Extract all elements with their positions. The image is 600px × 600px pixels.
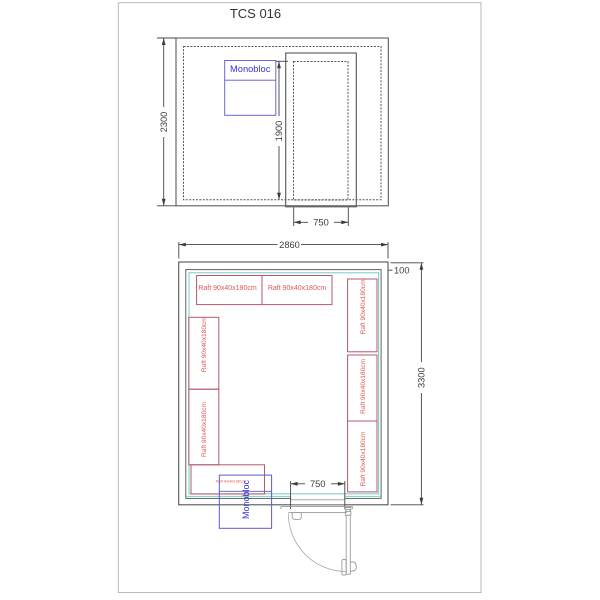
- svg-text:Raft 90x40x180cm: Raft 90x40x180cm: [360, 279, 367, 334]
- svg-text:1900: 1900: [274, 121, 284, 142]
- svg-text:Raft 90x40x180cm: Raft 90x40x180cm: [201, 317, 208, 372]
- svg-text:Raft 90x40x180cm: Raft 90x40x180cm: [360, 358, 367, 413]
- svg-text:2860: 2860: [279, 240, 300, 250]
- svg-text:2300: 2300: [159, 112, 169, 133]
- svg-text:Raft 90x40x180cm: Raft 90x40x180cm: [198, 285, 257, 292]
- svg-text:Monobloc: Monobloc: [241, 479, 251, 519]
- svg-text:Raft 90x40x180cm: Raft 90x40x180cm: [268, 285, 327, 292]
- svg-text:3300: 3300: [417, 367, 427, 388]
- svg-text:750: 750: [310, 479, 326, 489]
- svg-text:100: 100: [394, 265, 410, 275]
- svg-text:Monobloc: Monobloc: [230, 64, 271, 74]
- svg-text:750: 750: [313, 218, 329, 228]
- svg-text:TCS 016: TCS 016: [230, 6, 281, 21]
- svg-text:Raft 90x40x180cm: Raft 90x40x180cm: [360, 431, 367, 486]
- svg-text:Raft 90x40x180cm: Raft 90x40x180cm: [201, 402, 208, 457]
